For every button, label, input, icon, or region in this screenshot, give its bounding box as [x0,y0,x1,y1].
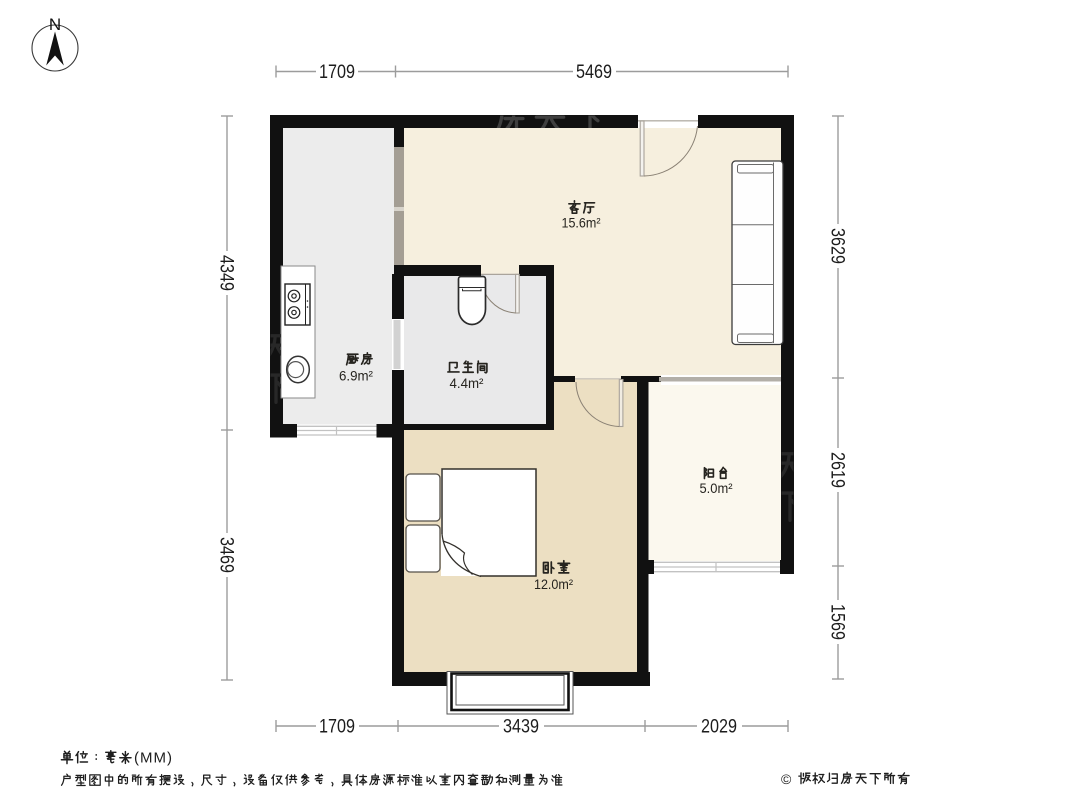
svg-text:12.0m²: 12.0m² [534,576,573,592]
svg-text:5469: 5469 [576,62,612,83]
svg-text:15.6m²: 15.6m² [562,215,601,231]
svg-text:(MM): (MM) [134,750,173,767]
svg-text:1709: 1709 [319,717,355,738]
svg-text:2619: 2619 [827,452,848,488]
svg-text:3439: 3439 [503,717,539,738]
svg-text:4.4m²: 4.4m² [450,375,484,391]
svg-text:3629: 3629 [827,228,848,264]
svg-text:4349: 4349 [216,255,237,291]
svg-text:©: © [781,771,792,787]
svg-text:2029: 2029 [701,717,737,738]
svg-text:6.9m²: 6.9m² [339,368,373,384]
svg-text:5.0m²: 5.0m² [700,480,733,496]
svg-text:1709: 1709 [319,62,355,83]
svg-text:1569: 1569 [827,604,848,640]
svg-text:3469: 3469 [216,537,237,573]
svg-text:N: N [49,15,61,34]
